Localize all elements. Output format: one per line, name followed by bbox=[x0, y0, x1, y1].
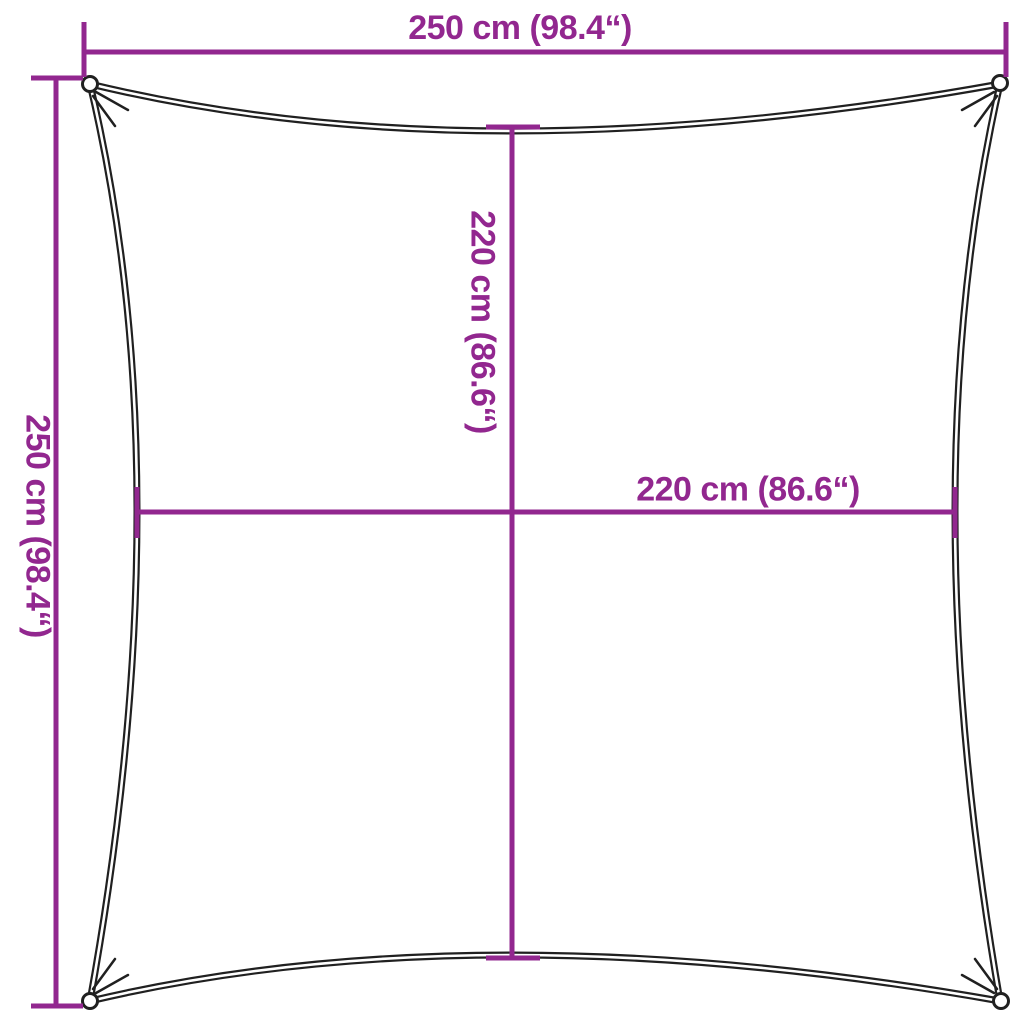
dimension-label-center-width: 220 cm (86.6“) bbox=[636, 471, 860, 510]
dimension-label-center-height: 220 cm (86.6“) bbox=[463, 210, 502, 434]
dimension-line-group bbox=[31, 22, 1006, 1006]
dimension-label-overall-height: 250 cm (98.4“) bbox=[18, 414, 57, 638]
dimension-label-overall-width: 250 cm (98.4“) bbox=[408, 9, 632, 48]
dimension-lines bbox=[0, 0, 1024, 1024]
diagram-canvas: 250 cm (98.4“) 250 cm (98.4“) 220 cm (86… bbox=[0, 0, 1024, 1024]
